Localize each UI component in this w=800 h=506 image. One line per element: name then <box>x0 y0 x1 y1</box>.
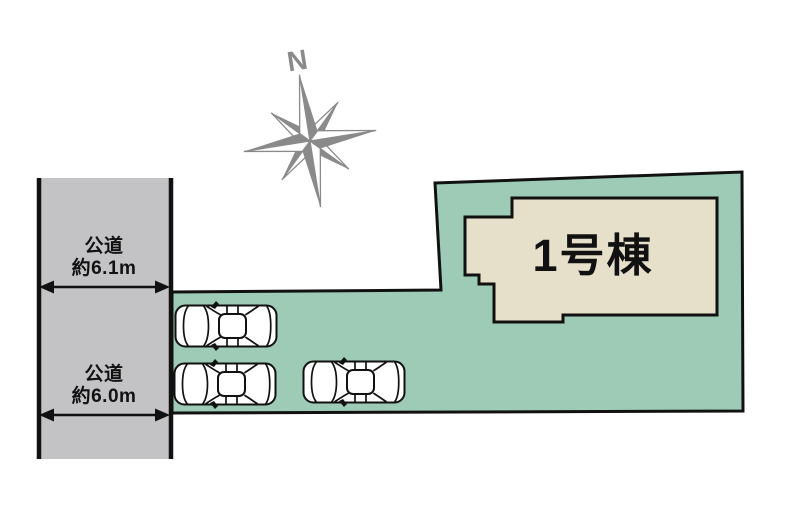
road-area <box>37 178 172 459</box>
car-icon <box>304 357 405 407</box>
north-label: N <box>285 44 310 78</box>
site-plan-diagram: N 公道 約6.1m 公道 約6.0m 1号棟 <box>0 0 800 506</box>
car-icon <box>176 301 277 351</box>
house-label: 1号棟 <box>466 231 720 281</box>
compass-rose-icon: N <box>229 35 387 218</box>
road-name: 公道 <box>37 236 171 258</box>
road-width-label-bottom: 公道 約6.0m <box>37 364 171 408</box>
road-width-value: 約6.0m <box>37 386 171 408</box>
road-width-label-top: 公道 約6.1m <box>37 236 171 280</box>
car-icon <box>175 359 276 409</box>
road-width-value: 約6.1m <box>37 258 171 280</box>
road-name: 公道 <box>37 364 171 386</box>
